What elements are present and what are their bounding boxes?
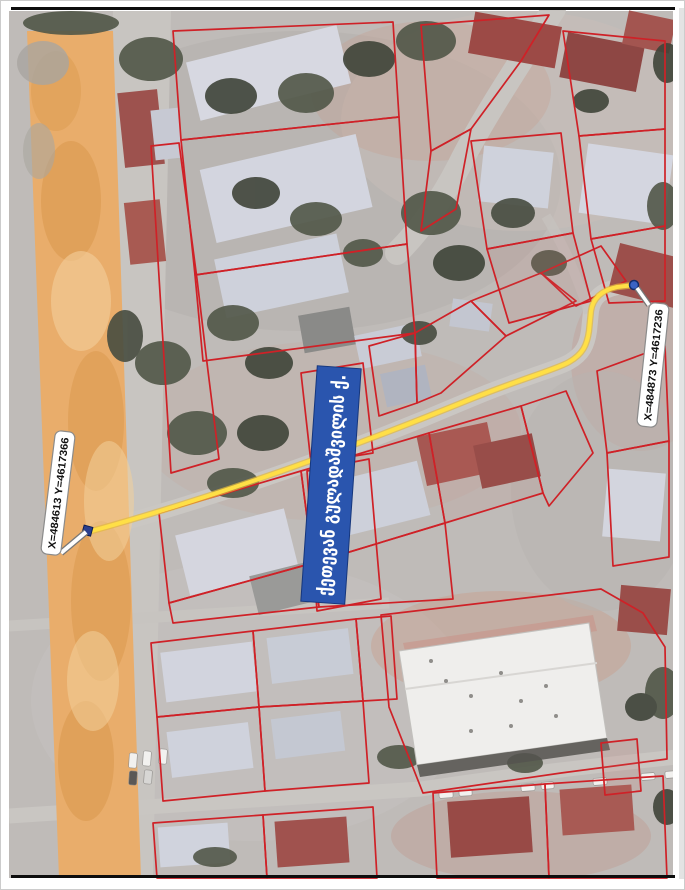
scanned-map-page: ქეთევან გულადაშვილის ქ. X=484613 Y=46173… — [0, 0, 685, 890]
bottom-border-line — [11, 875, 675, 878]
map-canvas: ქეთევან გულადაშვილის ქ. X=484613 Y=46173… — [1, 1, 685, 890]
top-border-line — [11, 7, 675, 10]
large-white-building — [399, 615, 610, 777]
